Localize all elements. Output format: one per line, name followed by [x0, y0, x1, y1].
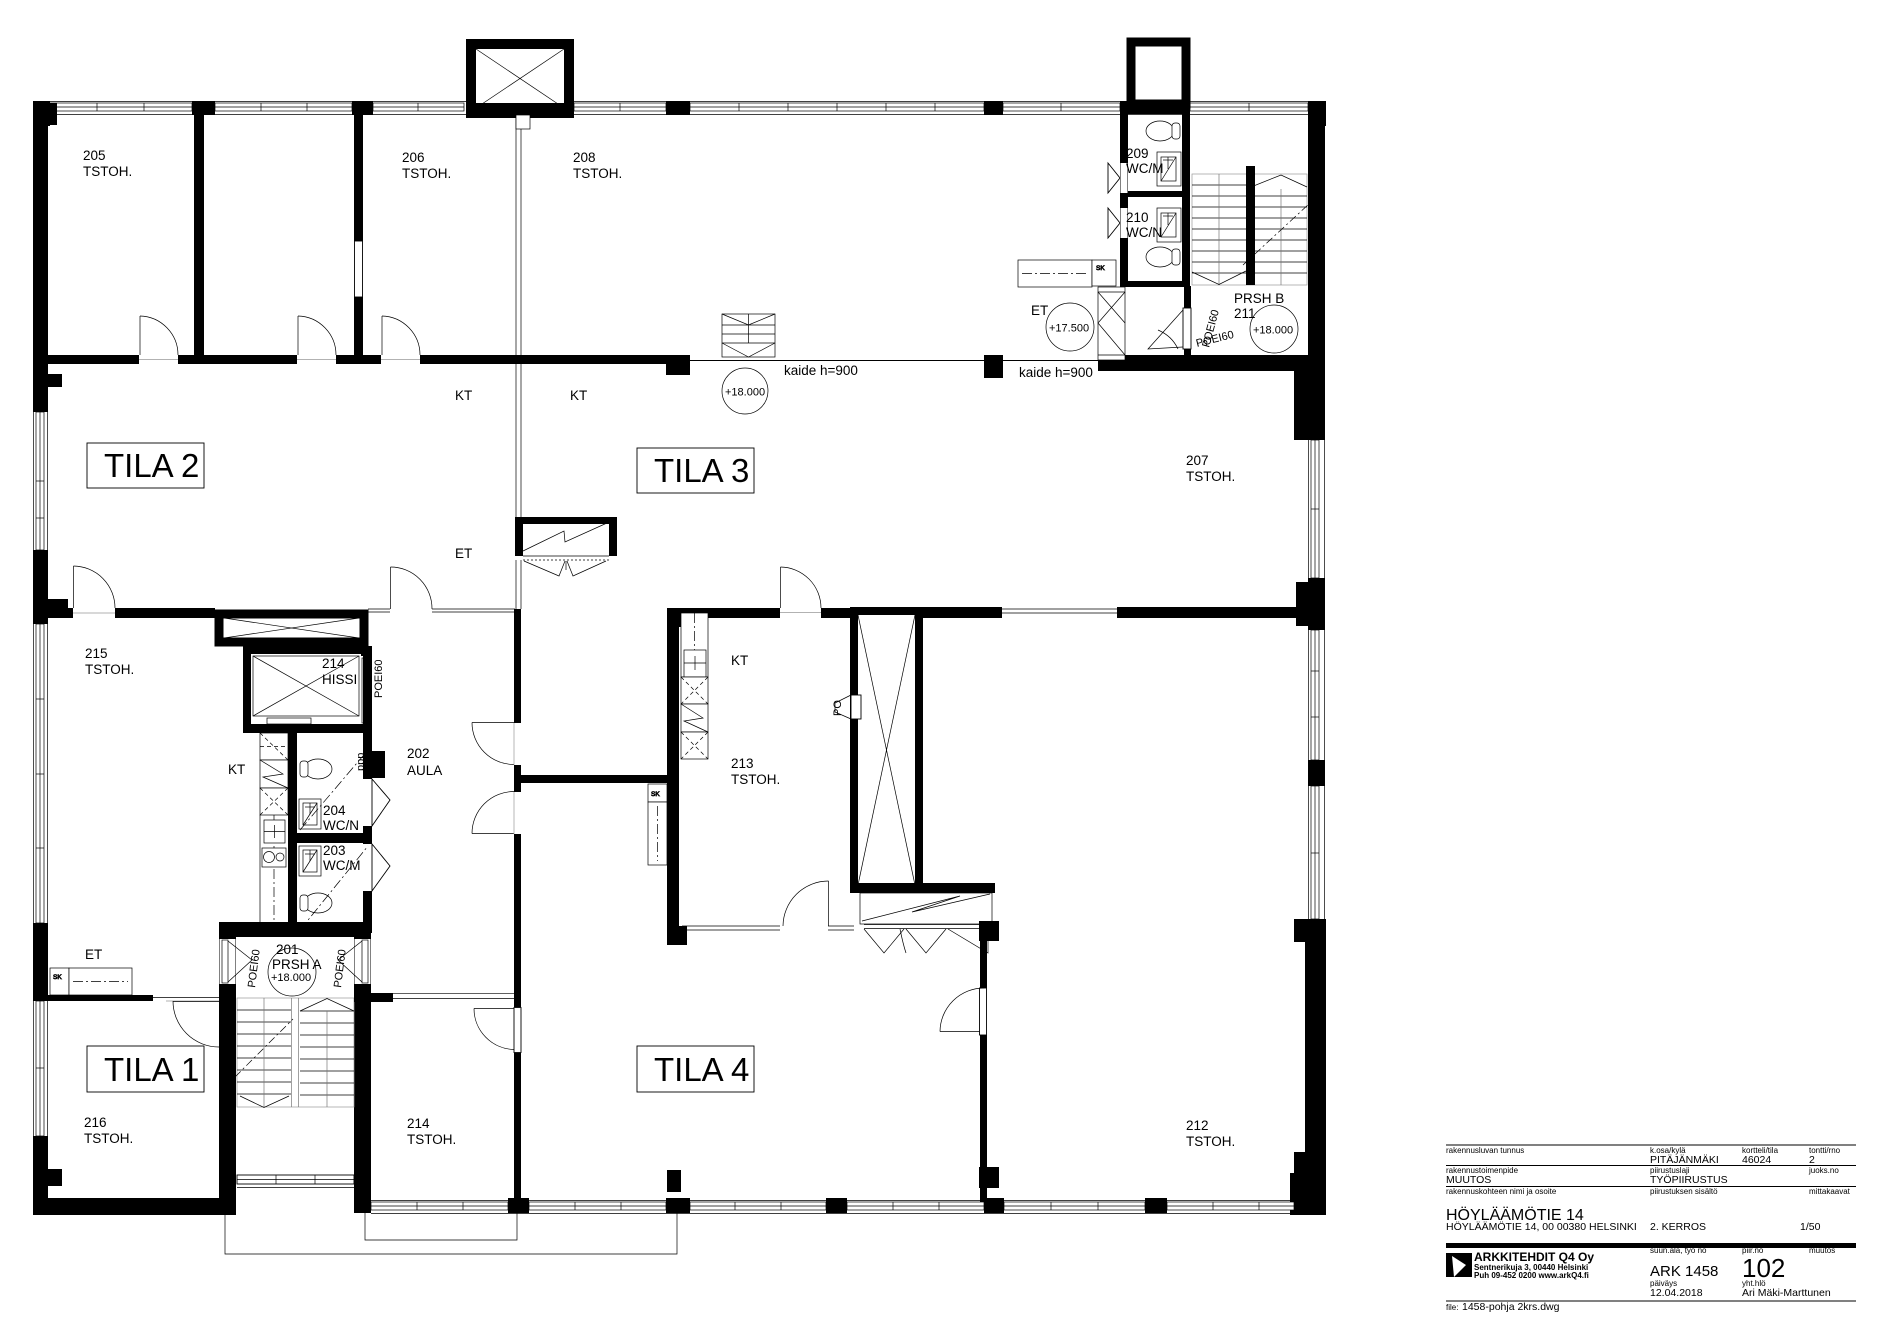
svg-text:ARK 1458: ARK 1458 — [1650, 1263, 1718, 1280]
svg-text:file:: file: — [1446, 1303, 1458, 1312]
svg-text:KT: KT — [570, 388, 587, 403]
svg-text:102: 102 — [1742, 1253, 1785, 1283]
svg-text:POEI60: POEI60 — [373, 659, 385, 698]
svg-text:suun.ala, työ no: suun.ala, työ no — [1650, 1246, 1707, 1255]
svg-text:kaide h=900: kaide h=900 — [784, 363, 858, 378]
svg-text:SK: SK — [53, 974, 62, 981]
svg-text:12.04.2018: 12.04.2018 — [1650, 1287, 1703, 1299]
svg-text:ET: ET — [1031, 303, 1048, 318]
svg-text:ET: ET — [85, 947, 102, 962]
svg-text:ARKKITEHDIT Q4 Oy: ARKKITEHDIT Q4 Oy — [1474, 1250, 1594, 1264]
svg-text:201: 201 — [276, 942, 299, 957]
svg-text:1/50: 1/50 — [1800, 1221, 1821, 1233]
svg-text:46024: 46024 — [1742, 1154, 1771, 1166]
svg-text:TILA 3: TILA 3 — [654, 452, 749, 489]
svg-text:juoks.no: juoks.no — [1808, 1166, 1839, 1175]
svg-text:MUUTOS: MUUTOS — [1446, 1174, 1491, 1186]
svg-text:+18.000: +18.000 — [271, 972, 311, 984]
svg-text:2: 2 — [1809, 1154, 1815, 1166]
svg-text:TILA 4: TILA 4 — [654, 1051, 749, 1088]
svg-text:Puh 09-452 0200 www.arkQ4.fi: Puh 09-452 0200 www.arkQ4.fi — [1474, 1271, 1589, 1280]
svg-text:piirustuksen sisältö: piirustuksen sisältö — [1650, 1187, 1718, 1196]
svg-text:1458-pohja 2krs.dwg: 1458-pohja 2krs.dwg — [1462, 1301, 1560, 1313]
svg-text:2. KERROS: 2. KERROS — [1650, 1221, 1706, 1233]
svg-text:TILA 2: TILA 2 — [104, 447, 199, 484]
svg-text:KT: KT — [731, 653, 748, 668]
svg-text:KT: KT — [455, 388, 472, 403]
svg-text:PITÄJÄNMÄKI: PITÄJÄNMÄKI — [1650, 1154, 1719, 1166]
svg-text:KT: KT — [228, 762, 245, 777]
svg-text:ET: ET — [455, 546, 472, 561]
svg-text:PRSH A: PRSH A — [272, 957, 322, 972]
svg-text:ppp: ppp — [355, 753, 367, 771]
svg-text:rakennusluvan tunnus: rakennusluvan tunnus — [1446, 1146, 1524, 1155]
svg-text:PRSH B: PRSH B — [1234, 291, 1284, 306]
svg-text:mittakaavat: mittakaavat — [1809, 1187, 1851, 1196]
svg-text:PO: PO — [832, 700, 844, 716]
svg-text:Ari Mäki-Marttunen: Ari Mäki-Marttunen — [1742, 1287, 1831, 1299]
svg-text:kaide h=900: kaide h=900 — [1019, 365, 1093, 380]
svg-text:+18.000: +18.000 — [725, 387, 765, 399]
svg-text:SK: SK — [1096, 265, 1105, 272]
svg-text:+17.500: +17.500 — [1049, 323, 1089, 335]
svg-text:muutos: muutos — [1809, 1246, 1835, 1255]
svg-text:HÖYLÄÄMÖTIE 14: HÖYLÄÄMÖTIE 14 — [1446, 1206, 1584, 1224]
svg-text:TYÖPIIRUSTUS: TYÖPIIRUSTUS — [1650, 1174, 1728, 1186]
svg-text:SK: SK — [651, 791, 660, 798]
svg-text:rakennuskohteen nimi ja oso: rakennuskohteen nimi ja osoite — [1446, 1187, 1557, 1196]
svg-text:TILA 1: TILA 1 — [104, 1051, 199, 1088]
svg-text:+18.000: +18.000 — [1253, 325, 1293, 337]
